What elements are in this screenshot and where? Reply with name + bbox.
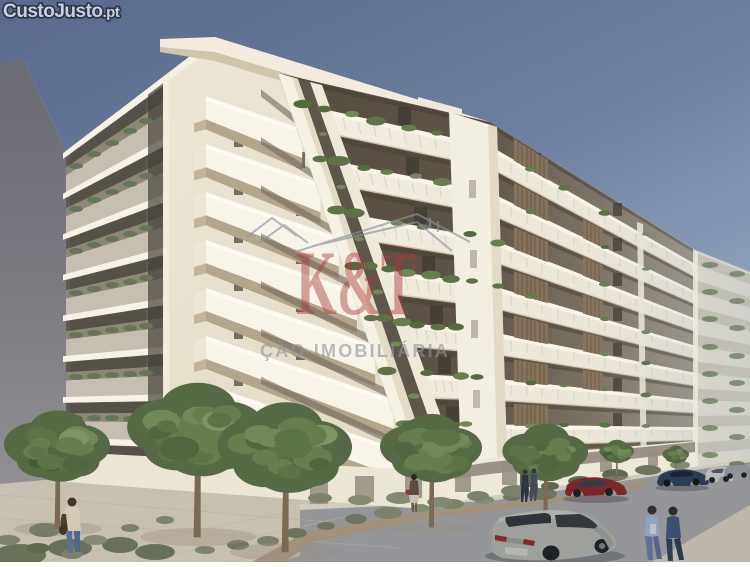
svg-text:CustoJusto.pt: CustoJusto.pt xyxy=(3,1,120,22)
svg-text:K&T: K&T xyxy=(296,232,416,334)
svg-text:ÇÃO IMOBILIÁRIA: ÇÃO IMOBILIÁRIA xyxy=(260,340,450,361)
